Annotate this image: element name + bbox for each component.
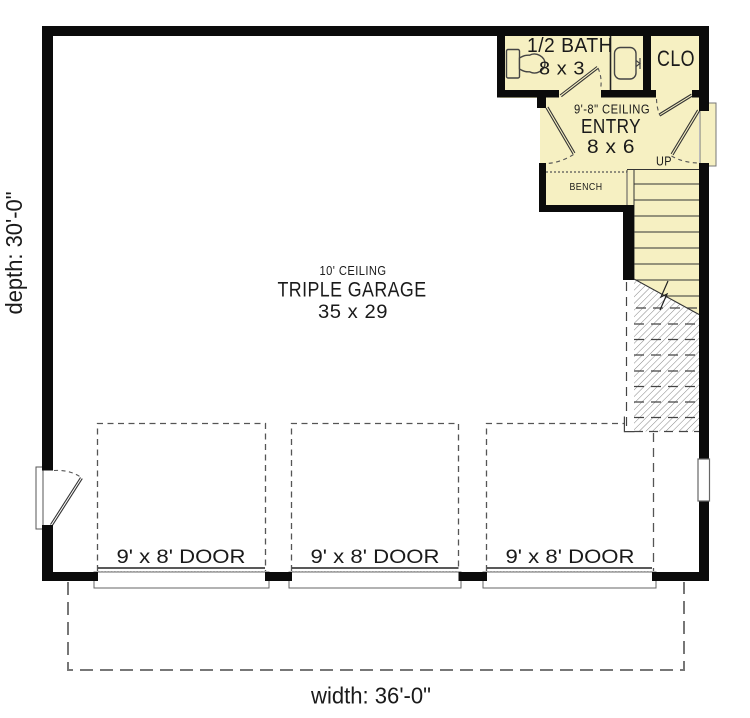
svg-text:ENTRY: ENTRY [581, 116, 641, 138]
svg-text:10' CEILING: 10' CEILING [320, 263, 387, 278]
svg-text:UP: UP [656, 155, 672, 169]
svg-text:TRIPLE GARAGE: TRIPLE GARAGE [278, 279, 427, 302]
svg-text:8 x 6: 8 x 6 [587, 137, 635, 158]
svg-text:9'-8" CEILING: 9'-8" CEILING [574, 102, 650, 117]
svg-text:width: 36'-0": width: 36'-0" [310, 683, 431, 709]
svg-text:9' x 8' DOOR: 9' x 8' DOOR [311, 546, 440, 568]
svg-text:9' x 8' DOOR: 9' x 8' DOOR [506, 546, 635, 568]
svg-text:35 x 29: 35 x 29 [318, 302, 388, 323]
svg-text:depth: 30'-0": depth: 30'-0" [1, 192, 27, 315]
svg-text:BENCH: BENCH [570, 182, 603, 193]
svg-text:CLO: CLO [657, 46, 695, 71]
svg-text:1/2 BATH: 1/2 BATH [527, 35, 613, 57]
svg-text:8 x 3: 8 x 3 [539, 59, 585, 79]
svg-text:9' x 8' DOOR: 9' x 8' DOOR [117, 546, 246, 568]
